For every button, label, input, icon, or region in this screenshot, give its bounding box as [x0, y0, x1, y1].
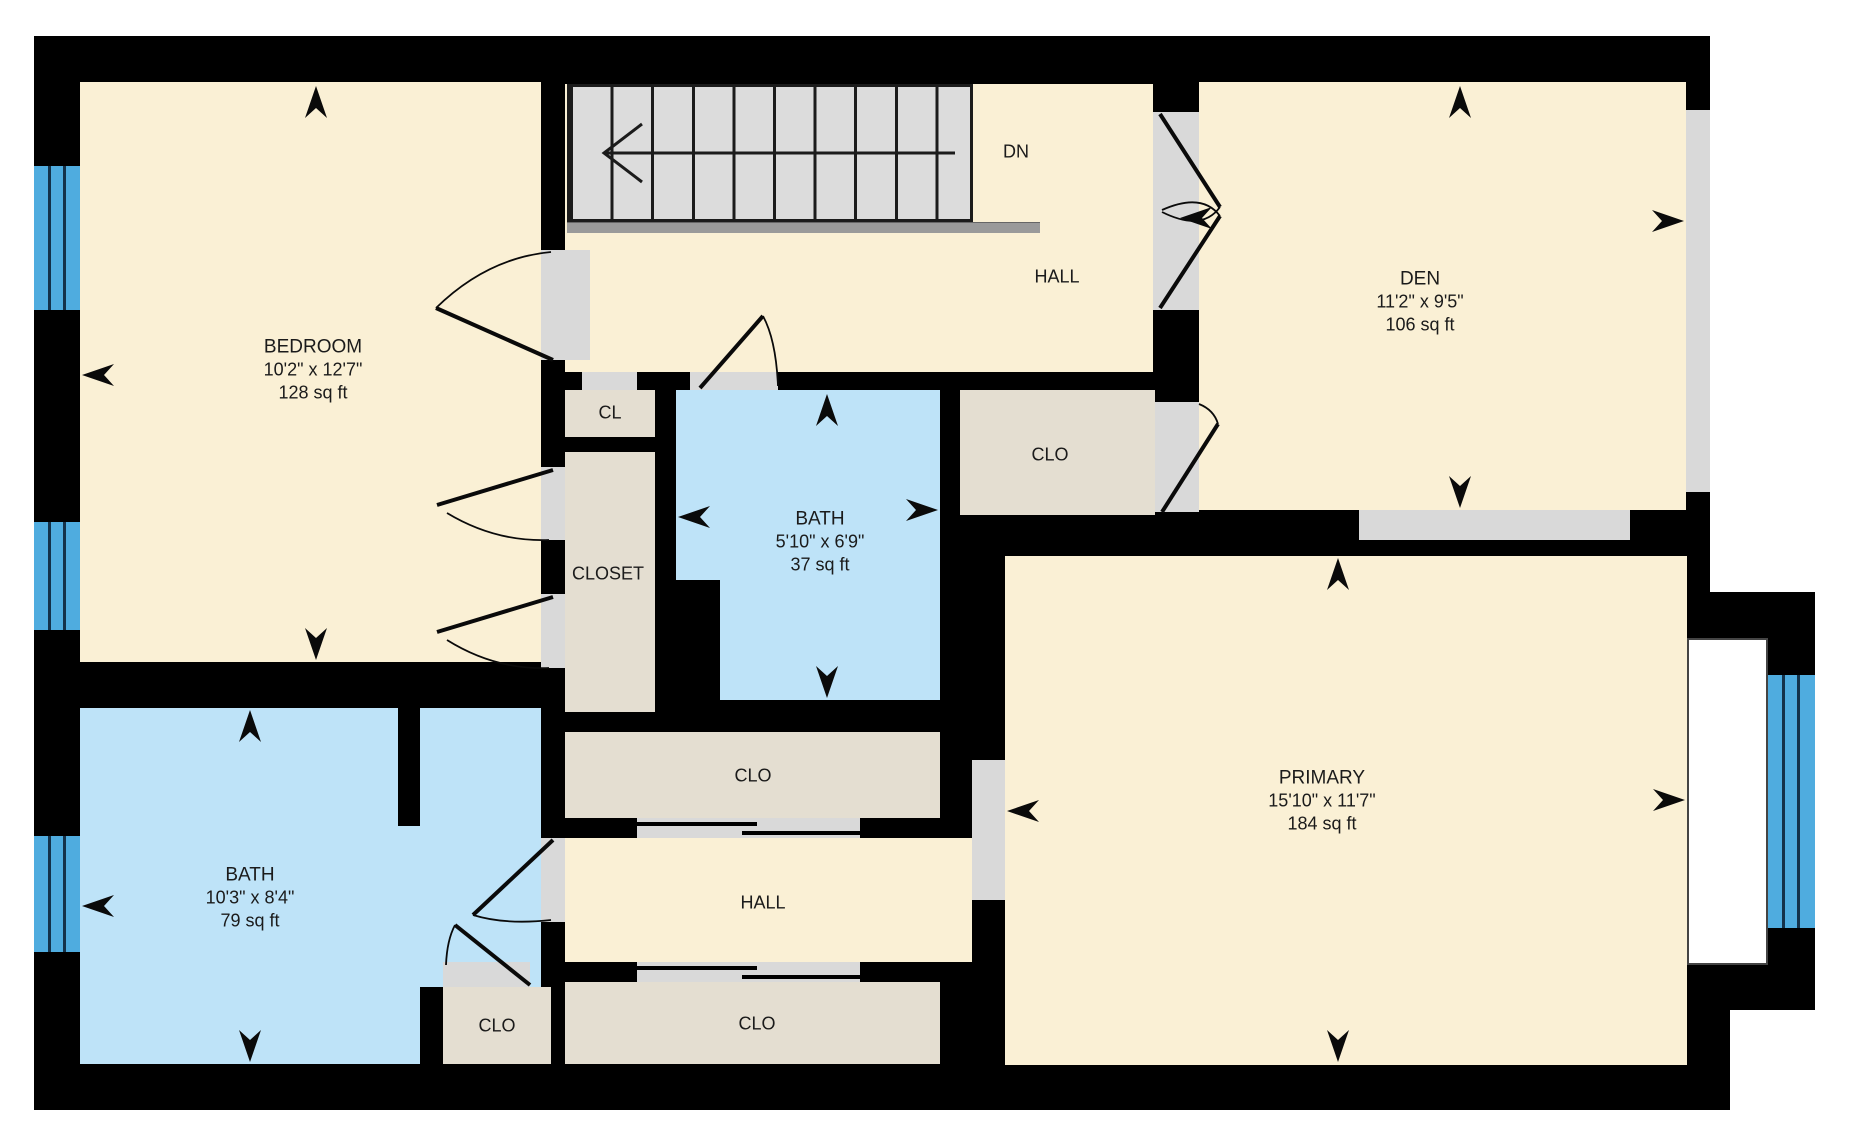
clo-upper-label: CLO [734, 765, 771, 788]
hall-den-door-opening [1153, 112, 1199, 310]
cl-opening [582, 372, 637, 390]
bay-floor [1687, 638, 1768, 965]
bottom-right-wall [1710, 1010, 1730, 1110]
clo-den-label: CLO [1031, 444, 1068, 467]
closet-door-opening-2 [541, 594, 565, 668]
stair-dn-label: DN [1003, 141, 1029, 164]
clo-small-label: CLO [478, 1015, 515, 1038]
hall-upper-label: HALL [1034, 266, 1079, 289]
closet-small-door-opening [443, 962, 530, 987]
bath-partition-wall [398, 696, 420, 826]
bath-center-label: BATH 5'10" x 6'9" 37 sq ft [776, 508, 865, 577]
window-left-2 [34, 522, 80, 630]
stair-rail [567, 222, 1040, 233]
window-left-1 [34, 166, 80, 310]
closet-label: CLOSET [572, 563, 644, 586]
window-bay [1768, 675, 1815, 928]
room-bath-lower-b [80, 987, 420, 1064]
window-left-3 [34, 836, 80, 952]
primary-label: PRIMARY 15'10" x 11'7" 184 sq ft [1268, 767, 1375, 836]
closet-door-opening-1 [541, 467, 565, 540]
bath-center-door-opening [690, 372, 778, 390]
closet-den-door-opening [1155, 402, 1199, 512]
bedroom-label: BEDROOM 10'2" x 12'7" 128 sq ft [264, 336, 363, 405]
primary-west-opening [972, 760, 1005, 900]
cl-label: CL [598, 402, 621, 425]
room-bath-center-b [720, 580, 940, 700]
slider-track-lower [637, 962, 860, 982]
staircase [567, 84, 973, 222]
den-primary-opening [1359, 510, 1630, 540]
bath-lower-door-opening [541, 838, 565, 922]
floor-plan: BEDROOM 10'2" x 12'7" 128 sq ft BATH 10'… [0, 0, 1852, 1140]
bath-lower-label: BATH 10'3" x 8'4" 79 sq ft [206, 864, 295, 933]
den-east-opening [1686, 110, 1710, 492]
slider-track-upper [637, 818, 860, 838]
den-label: DEN 11'2" x 9'5" 106 sq ft [1376, 268, 1463, 337]
hall-lower-label: HALL [740, 892, 785, 915]
room-bath-lower-a [80, 708, 541, 987]
clo-lower-label: CLO [738, 1013, 775, 1036]
bedroom-door-opening [541, 250, 590, 360]
